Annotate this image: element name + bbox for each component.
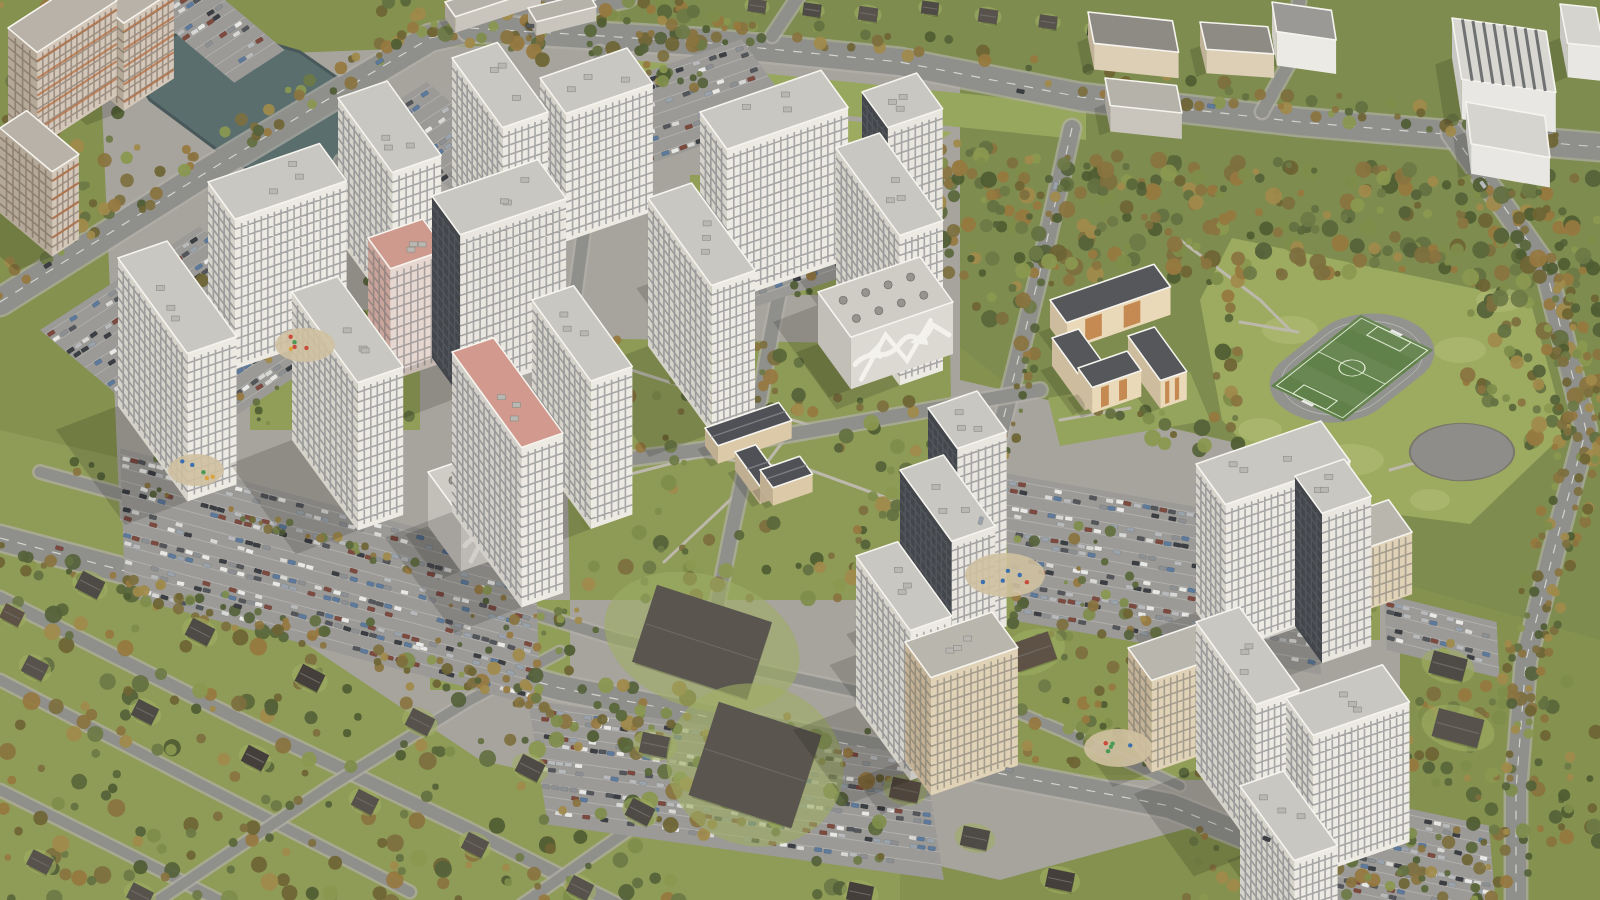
playground [965, 553, 1045, 597]
tree [711, 31, 722, 42]
parked-car [603, 725, 611, 730]
tree [1382, 245, 1393, 256]
tree [1195, 184, 1207, 196]
tree [1402, 162, 1417, 177]
rooftop-unit [1259, 795, 1267, 800]
tree [1507, 775, 1514, 782]
tree [609, 703, 620, 714]
tree [1423, 761, 1436, 774]
tree [255, 620, 265, 630]
tree [1107, 661, 1120, 674]
tree [1068, 533, 1080, 545]
tree [649, 872, 661, 884]
tree [1564, 804, 1574, 814]
parked-car [1186, 512, 1194, 517]
tree [1107, 216, 1118, 227]
tree [65, 631, 74, 640]
tree [584, 24, 597, 37]
tree [236, 392, 244, 400]
tree [41, 562, 47, 568]
tree [1048, 281, 1054, 287]
parked-car [895, 808, 903, 813]
tree [344, 76, 357, 89]
parked-car [558, 769, 566, 774]
aerial-scene [0, 0, 1600, 900]
tree [834, 443, 843, 452]
rooftop-unit [498, 395, 506, 400]
tree [343, 729, 351, 737]
tree [574, 742, 583, 751]
tree [1109, 683, 1116, 690]
tree [99, 673, 116, 690]
parked-car [1107, 506, 1115, 511]
tree [1555, 602, 1566, 613]
tree [546, 709, 555, 718]
roof-skylight [884, 281, 892, 289]
tree [1150, 152, 1167, 169]
tree [996, 312, 1009, 325]
tree [1572, 350, 1582, 360]
tree [1506, 698, 1517, 709]
tree [558, 806, 567, 815]
tree [1227, 879, 1240, 892]
tree [877, 400, 889, 412]
tree [400, 697, 413, 710]
tree [666, 719, 675, 728]
tree [1535, 542, 1542, 549]
tree [217, 753, 230, 766]
tree [1564, 763, 1571, 770]
tree [772, 388, 778, 394]
tree [1225, 87, 1234, 96]
tree [1259, 221, 1273, 235]
tree [210, 706, 216, 712]
tree [275, 738, 291, 754]
tree [749, 21, 757, 29]
tree [792, 32, 802, 42]
tree [1421, 885, 1428, 892]
tree [948, 190, 960, 202]
tree [245, 833, 259, 847]
tree [1344, 175, 1359, 190]
tree [1224, 358, 1237, 371]
tree [195, 593, 205, 603]
tree [577, 684, 587, 694]
playground-surface [965, 553, 1045, 597]
tree [23, 692, 41, 710]
tree [669, 455, 679, 465]
tree [391, 39, 402, 50]
tree [648, 30, 655, 37]
tree [1226, 422, 1236, 432]
tree [966, 149, 974, 157]
tree [1538, 533, 1545, 540]
tree [1423, 209, 1432, 218]
tree [1518, 399, 1526, 407]
tree [1018, 391, 1027, 400]
tree [1105, 408, 1116, 419]
tree [1554, 452, 1562, 460]
tree [522, 737, 529, 744]
tree [1394, 113, 1400, 119]
roof-skylight [907, 273, 915, 281]
tree [503, 675, 511, 683]
tree [794, 291, 800, 297]
tree [1289, 247, 1306, 264]
parked-car [796, 845, 804, 850]
rooftop-unit [939, 509, 947, 514]
tree [407, 22, 419, 34]
parked-car [668, 809, 676, 814]
tree [106, 136, 113, 143]
tree [78, 182, 87, 191]
tree [1097, 161, 1114, 178]
tree [400, 810, 409, 819]
tree [733, 22, 741, 30]
tree [1544, 324, 1552, 332]
tree [478, 738, 484, 744]
tree [1351, 198, 1365, 212]
tree [1167, 236, 1183, 252]
tree [507, 632, 514, 639]
tree [1231, 252, 1245, 266]
tree [253, 398, 261, 406]
tree [1457, 217, 1469, 229]
tree [435, 638, 441, 644]
tree [1497, 673, 1509, 685]
tree [1111, 150, 1124, 163]
tree [902, 50, 915, 63]
tree [1189, 195, 1204, 210]
rooftop-unit [946, 648, 954, 653]
tree [123, 870, 135, 882]
tree [1526, 780, 1537, 791]
tree [1544, 648, 1553, 657]
meadow-patch [1434, 337, 1486, 363]
tree [263, 524, 273, 534]
tree [1472, 241, 1489, 258]
tree [1025, 155, 1034, 164]
tree [1026, 213, 1033, 220]
roof-skylight [920, 291, 928, 299]
tree [230, 771, 241, 782]
tree [65, 557, 74, 566]
parked-car [910, 844, 918, 849]
tree [1582, 327, 1588, 333]
parked-car [928, 846, 936, 851]
tree [132, 675, 149, 692]
tree [953, 139, 961, 147]
tree [66, 726, 82, 742]
tree [374, 658, 382, 666]
tree [116, 584, 126, 594]
rooftop-unit [1240, 468, 1248, 473]
tree [1529, 586, 1539, 596]
tree [1242, 93, 1249, 100]
parked-car [861, 811, 869, 816]
tree [1341, 889, 1352, 900]
tree [534, 883, 541, 890]
tree [1477, 385, 1486, 394]
tree [1574, 487, 1583, 496]
tree [618, 884, 634, 900]
tree [689, 82, 699, 92]
tree [133, 860, 147, 874]
tree [1536, 667, 1545, 676]
tree [1377, 206, 1384, 213]
tree [597, 714, 607, 724]
tree [255, 407, 263, 415]
tree [1030, 365, 1038, 373]
tree [657, 75, 669, 87]
tree [814, 562, 826, 574]
tree [859, 505, 869, 515]
tree [1520, 574, 1531, 585]
tree [129, 575, 139, 585]
tree [1311, 205, 1319, 213]
tree [98, 153, 112, 167]
tree [1446, 639, 1455, 648]
rooftop-unit [584, 75, 592, 80]
tree [1265, 188, 1282, 205]
tree [421, 791, 433, 803]
parked-car [1170, 592, 1178, 597]
parked-car [1174, 561, 1182, 566]
tree [1500, 875, 1513, 888]
tree [1497, 324, 1511, 338]
tree [1582, 504, 1593, 515]
tree [1028, 717, 1041, 730]
rooftop-unit [784, 107, 792, 112]
tree [585, 863, 591, 869]
tree [180, 640, 193, 653]
tree [677, 78, 684, 85]
tree [52, 797, 65, 810]
tree [415, 739, 428, 752]
tree [38, 765, 45, 772]
tree [108, 199, 121, 212]
tree [617, 679, 630, 692]
tree [232, 625, 239, 632]
tree [1513, 211, 1526, 224]
tree [396, 656, 408, 668]
tree [18, 551, 29, 562]
tree [73, 468, 81, 476]
tree [135, 826, 146, 837]
rooftop-unit [961, 508, 969, 513]
tree [275, 385, 280, 390]
tree [335, 62, 348, 75]
tree [1093, 540, 1097, 544]
tree [1525, 705, 1537, 717]
parked-car [548, 768, 556, 773]
tree [1415, 697, 1424, 706]
tree [427, 655, 437, 665]
tree [1558, 356, 1569, 367]
tree [582, 577, 596, 591]
tree [442, 684, 450, 692]
parked-car [819, 830, 827, 835]
tree [1507, 683, 1518, 694]
tree [812, 889, 822, 899]
tree [557, 615, 565, 623]
tree [1011, 422, 1016, 427]
tree [1120, 200, 1134, 214]
tree [1510, 355, 1524, 369]
tree [564, 666, 574, 676]
parked-car [619, 770, 627, 775]
tree [44, 624, 61, 641]
parked-car [1164, 541, 1172, 546]
tree [1455, 192, 1468, 205]
tree [967, 255, 974, 262]
tree [1243, 266, 1257, 280]
tree [660, 707, 672, 719]
tree [344, 760, 357, 773]
tree [1226, 210, 1237, 221]
tree [113, 770, 121, 778]
tree [1503, 829, 1510, 836]
tree [1254, 89, 1266, 101]
playground-equipment [1104, 741, 1108, 745]
tree [1554, 273, 1563, 282]
tree [433, 680, 442, 689]
tree [664, 874, 677, 887]
tree [1565, 220, 1581, 236]
tree [504, 878, 512, 886]
rooftop-unit [899, 94, 907, 99]
tree [178, 164, 191, 177]
tree [847, 43, 855, 51]
tree [1014, 252, 1026, 264]
tree [687, 5, 700, 18]
tree [309, 615, 321, 627]
tree [1426, 126, 1433, 133]
tree [1558, 207, 1566, 215]
tree [383, 553, 391, 561]
tree [1210, 272, 1223, 285]
tree [1489, 824, 1500, 835]
tree [1273, 227, 1283, 237]
tree [306, 887, 319, 900]
tree [811, 856, 822, 867]
playground-equipment [981, 580, 985, 584]
window-grid [591, 375, 633, 522]
tree [1466, 817, 1480, 831]
tree [1444, 870, 1450, 876]
tree [1058, 703, 1069, 714]
tree [1502, 663, 1512, 673]
tree [1037, 278, 1045, 286]
tree [110, 572, 117, 579]
tree [81, 702, 90, 711]
tree [1414, 202, 1421, 209]
tree [661, 475, 677, 491]
playground-equipment [292, 345, 296, 349]
tree [34, 570, 44, 580]
parked-car [1018, 482, 1026, 487]
tree [395, 750, 406, 761]
tree [1389, 231, 1401, 243]
tree [1335, 271, 1341, 277]
tree [1191, 169, 1206, 184]
tree [860, 30, 871, 41]
tree [756, 33, 766, 43]
tree [1165, 258, 1182, 275]
tree [1298, 190, 1305, 197]
tree [1376, 171, 1391, 186]
tree [1564, 428, 1572, 436]
tree [265, 833, 274, 842]
parked-car [1011, 507, 1019, 512]
tree [1567, 400, 1579, 412]
tree [488, 21, 498, 31]
tree [634, 705, 645, 716]
parked-car [923, 812, 931, 817]
rooftop-unit [295, 174, 303, 179]
tree [1525, 853, 1532, 860]
rooftop-unit [580, 331, 588, 336]
tree [294, 90, 305, 101]
tree [792, 403, 805, 416]
rooftop-unit [1353, 707, 1361, 712]
tree [839, 428, 854, 443]
tree [229, 838, 238, 847]
tree [1129, 234, 1147, 252]
tree [1172, 156, 1182, 166]
tree [587, 41, 593, 47]
tree [232, 629, 248, 645]
tree [240, 516, 246, 522]
tree [1480, 839, 1487, 846]
tree [1159, 410, 1165, 416]
tree [1097, 629, 1106, 638]
tree [1508, 654, 1516, 662]
tree [1208, 185, 1217, 194]
tree [1171, 213, 1183, 225]
tree [437, 877, 449, 889]
tree [285, 87, 291, 93]
tree [1306, 95, 1318, 107]
parked-car [886, 858, 894, 863]
tree [1473, 862, 1486, 875]
tree [52, 835, 69, 852]
tree [190, 152, 199, 161]
tree [1124, 243, 1131, 250]
tree [304, 711, 317, 724]
tree [1185, 75, 1197, 87]
tree [1119, 598, 1129, 608]
tree [1549, 496, 1558, 505]
tree [261, 795, 271, 805]
industrial-building [1453, 102, 1550, 188]
tree [1122, 163, 1129, 170]
tree [1532, 570, 1544, 582]
tree [724, 18, 731, 25]
tree [1074, 708, 1081, 715]
tree [1386, 98, 1397, 109]
tree [153, 598, 164, 609]
tree [1145, 221, 1154, 230]
tree [1033, 201, 1042, 210]
tree [987, 200, 1000, 213]
tree [157, 844, 167, 854]
tree [856, 404, 863, 411]
tree [1232, 346, 1242, 356]
tree [1557, 419, 1567, 429]
tree [244, 612, 255, 623]
tree [1360, 219, 1376, 235]
